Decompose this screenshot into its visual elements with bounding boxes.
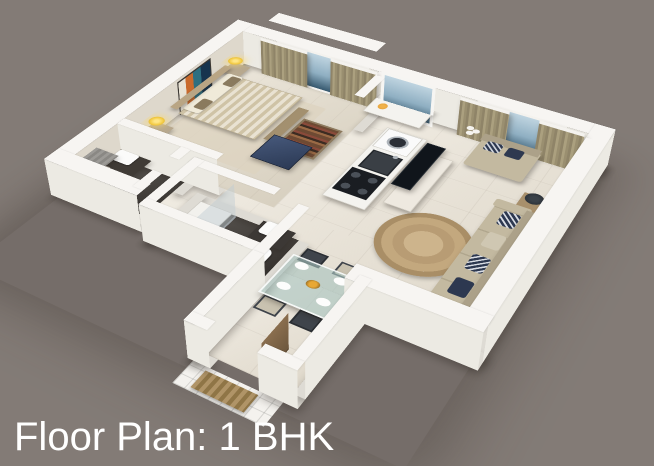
caption-floor-plan-title: Floor Plan: 1 BHK [14,415,334,460]
floor-plan-scene: Floor Plan: 1 BHK [0,0,654,466]
apartment-3d-plan [0,64,582,438]
